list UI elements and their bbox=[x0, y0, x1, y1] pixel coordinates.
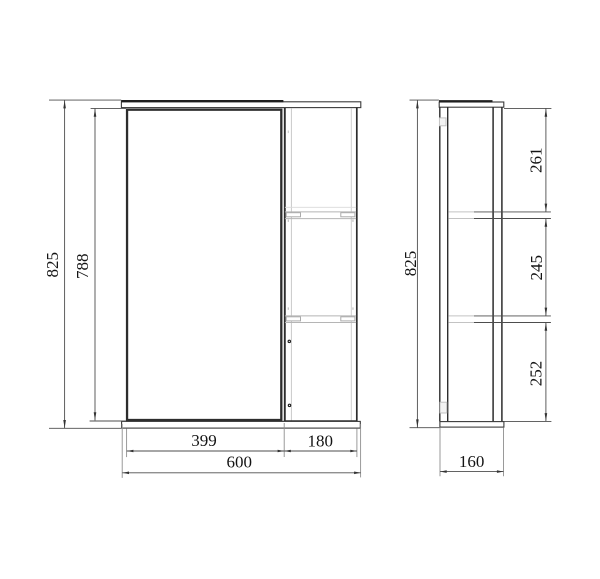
svg-text:180: 180 bbox=[308, 432, 334, 451]
svg-text:261: 261 bbox=[527, 148, 546, 174]
svg-text:825: 825 bbox=[401, 251, 420, 277]
svg-text:252: 252 bbox=[527, 361, 546, 387]
svg-text:600: 600 bbox=[226, 452, 252, 471]
svg-text:788: 788 bbox=[73, 254, 92, 280]
svg-text:399: 399 bbox=[191, 431, 217, 450]
svg-text:825: 825 bbox=[43, 252, 62, 278]
svg-text:245: 245 bbox=[527, 255, 546, 281]
svg-text:160: 160 bbox=[459, 452, 485, 471]
